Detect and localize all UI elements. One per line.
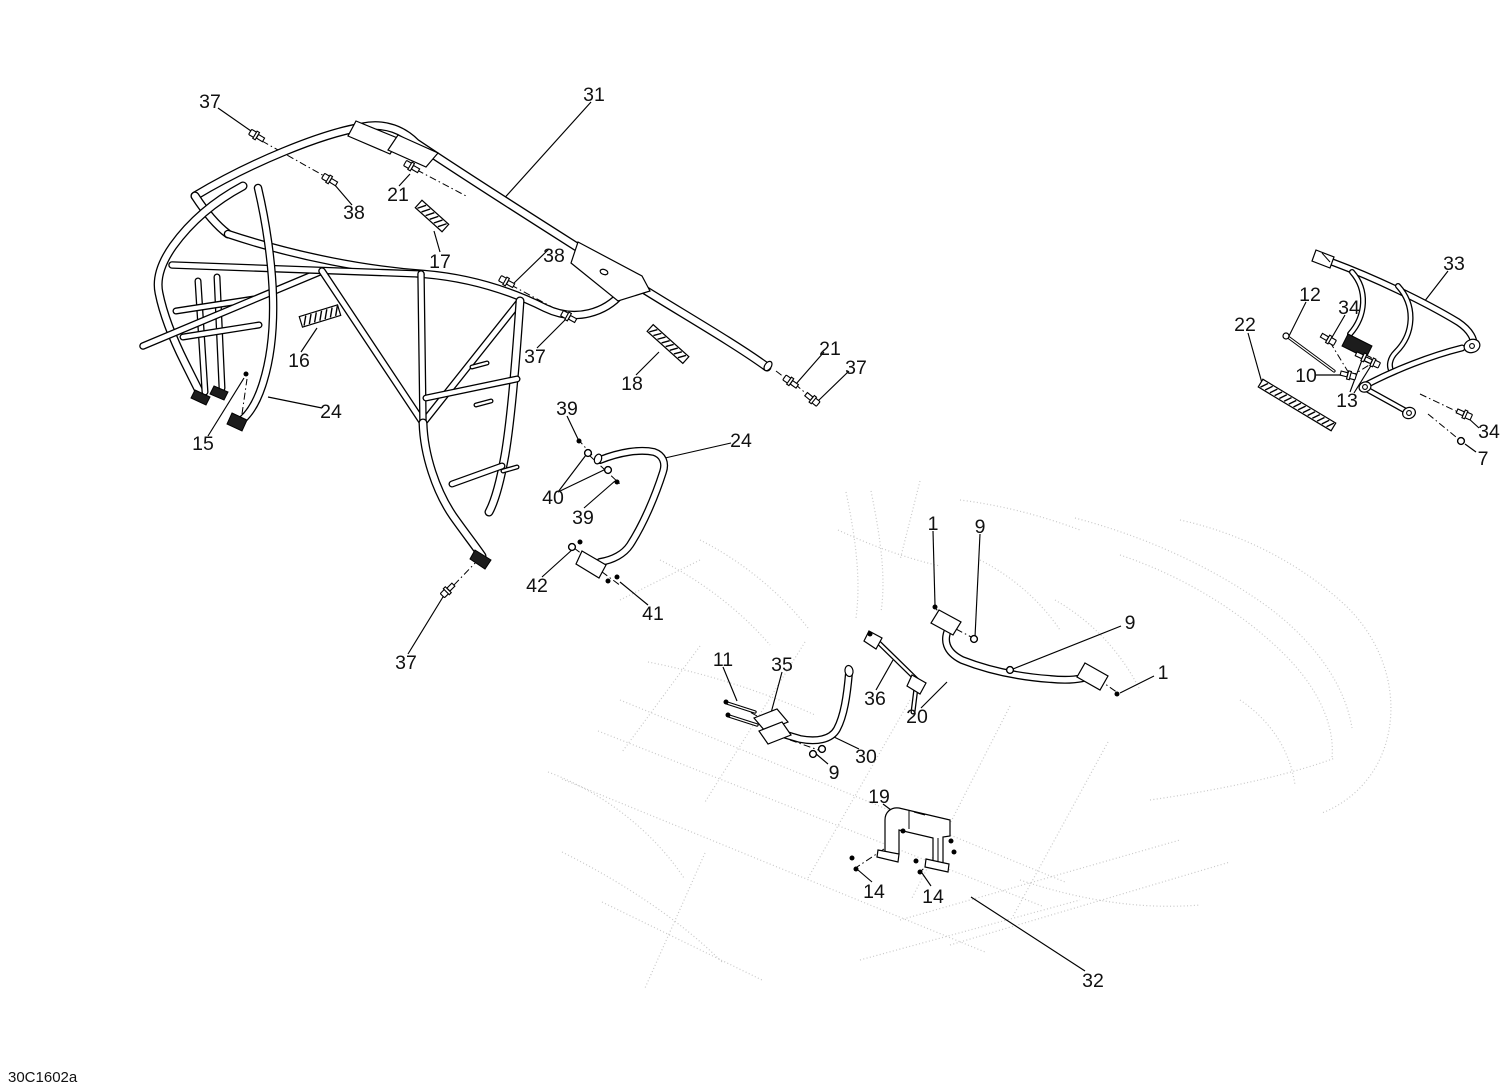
bolt-dot-icon bbox=[577, 439, 582, 444]
screw-icon bbox=[248, 128, 266, 143]
part-callout: 34 bbox=[1478, 421, 1500, 443]
bolt-dot-icon bbox=[952, 850, 957, 855]
bolt-dot-icon bbox=[850, 856, 855, 861]
washer-icon bbox=[605, 467, 612, 474]
part-callout: 37 bbox=[395, 652, 417, 674]
part-callout: 19 bbox=[868, 786, 890, 808]
bolt-dot-icon bbox=[933, 605, 938, 610]
bolt-dot-icon bbox=[868, 632, 873, 637]
screw-icon bbox=[321, 172, 339, 187]
part-callout: 34 bbox=[1338, 297, 1360, 319]
part-callout: 10 bbox=[1295, 365, 1317, 387]
part-callout: 7 bbox=[1478, 448, 1489, 470]
part-callout: 9 bbox=[1125, 612, 1136, 634]
bolt-dot-icon bbox=[615, 575, 620, 580]
screw-icon bbox=[803, 391, 820, 407]
part-callout: 18 bbox=[621, 373, 643, 395]
part-callout: 37 bbox=[199, 91, 221, 113]
washer-icon bbox=[569, 544, 576, 551]
part-callout: 14 bbox=[922, 886, 944, 908]
part-callout: 15 bbox=[192, 433, 214, 455]
part-callout: 39 bbox=[556, 398, 578, 420]
part-callout: 21 bbox=[819, 338, 841, 360]
washer-icon bbox=[1458, 438, 1465, 445]
part-callout: 17 bbox=[429, 251, 451, 273]
part-callout: 12 bbox=[1299, 284, 1321, 306]
screw-icon bbox=[1340, 369, 1357, 381]
part-callout: 24 bbox=[730, 430, 752, 452]
part-callout: 13 bbox=[1336, 390, 1358, 412]
part-callout: 37 bbox=[845, 357, 867, 379]
part-callout: 39 bbox=[572, 507, 594, 529]
bolt-dot-icon bbox=[606, 579, 611, 584]
bolt-dot-icon bbox=[244, 372, 249, 377]
part-callout: 30 bbox=[855, 746, 877, 768]
part-callout: 1 bbox=[1158, 662, 1169, 684]
screw-icon bbox=[1455, 407, 1473, 421]
washer-icon bbox=[1007, 667, 1014, 674]
ghost-chassis-sketch bbox=[548, 481, 1391, 988]
part-callout: 38 bbox=[343, 202, 365, 224]
part-callout: 24 bbox=[320, 401, 342, 423]
washer-icon bbox=[810, 751, 817, 758]
part-callout: 20 bbox=[906, 706, 928, 728]
part-callout: 1 bbox=[928, 513, 939, 535]
part-callout: 31 bbox=[583, 84, 605, 106]
part-callout: 16 bbox=[288, 350, 310, 372]
part-callout: 9 bbox=[975, 516, 986, 538]
bolt-dot-icon bbox=[615, 480, 620, 485]
part-callout: 33 bbox=[1443, 253, 1465, 275]
bolt-dot-icon bbox=[949, 839, 954, 844]
part-callout: 38 bbox=[543, 245, 565, 267]
leader-lines bbox=[208, 102, 1479, 971]
bolt-dot-icon bbox=[901, 829, 906, 834]
part-callout: 11 bbox=[713, 649, 733, 671]
part-callout: 9 bbox=[829, 762, 840, 784]
bolt-dot-icon bbox=[724, 700, 729, 705]
exploded-parts-diagram: 3731382117381637182137241539244039424137… bbox=[0, 0, 1500, 1092]
screw-icon bbox=[782, 374, 800, 390]
part-callout: 21 bbox=[387, 184, 409, 206]
part-callout: 37 bbox=[524, 346, 546, 368]
part-callout: 35 bbox=[771, 654, 793, 676]
part-callout: 42 bbox=[526, 575, 548, 597]
parts-diagram-page: 3731382117381637182137241539244039424137… bbox=[0, 0, 1500, 1092]
screw-icon bbox=[439, 582, 456, 599]
bolt-dot-icon bbox=[578, 540, 583, 545]
frame-line-art bbox=[143, 121, 1482, 872]
part-callouts: 3731382117381637182137241539244039424137… bbox=[192, 84, 1500, 992]
part-callout: 32 bbox=[1082, 970, 1104, 992]
assembly-axis-lines bbox=[242, 141, 1458, 871]
part-callout: 41 bbox=[642, 603, 664, 625]
washer-icon bbox=[971, 636, 978, 643]
bolt-dot-icon bbox=[1115, 692, 1120, 697]
part-callout: 36 bbox=[864, 688, 886, 710]
washer-icon bbox=[585, 450, 592, 457]
bolt-dot-icon bbox=[854, 867, 859, 872]
part-callout: 14 bbox=[863, 881, 885, 903]
part-callout: 40 bbox=[542, 487, 564, 509]
drawing-code: 30C1602a bbox=[8, 1069, 78, 1086]
bolt-dot-icon bbox=[914, 859, 919, 864]
washer-icon bbox=[819, 746, 826, 753]
part-callout: 22 bbox=[1234, 314, 1256, 336]
bolt-dot-icon bbox=[726, 713, 731, 718]
bolt-dot-icon bbox=[918, 870, 923, 875]
